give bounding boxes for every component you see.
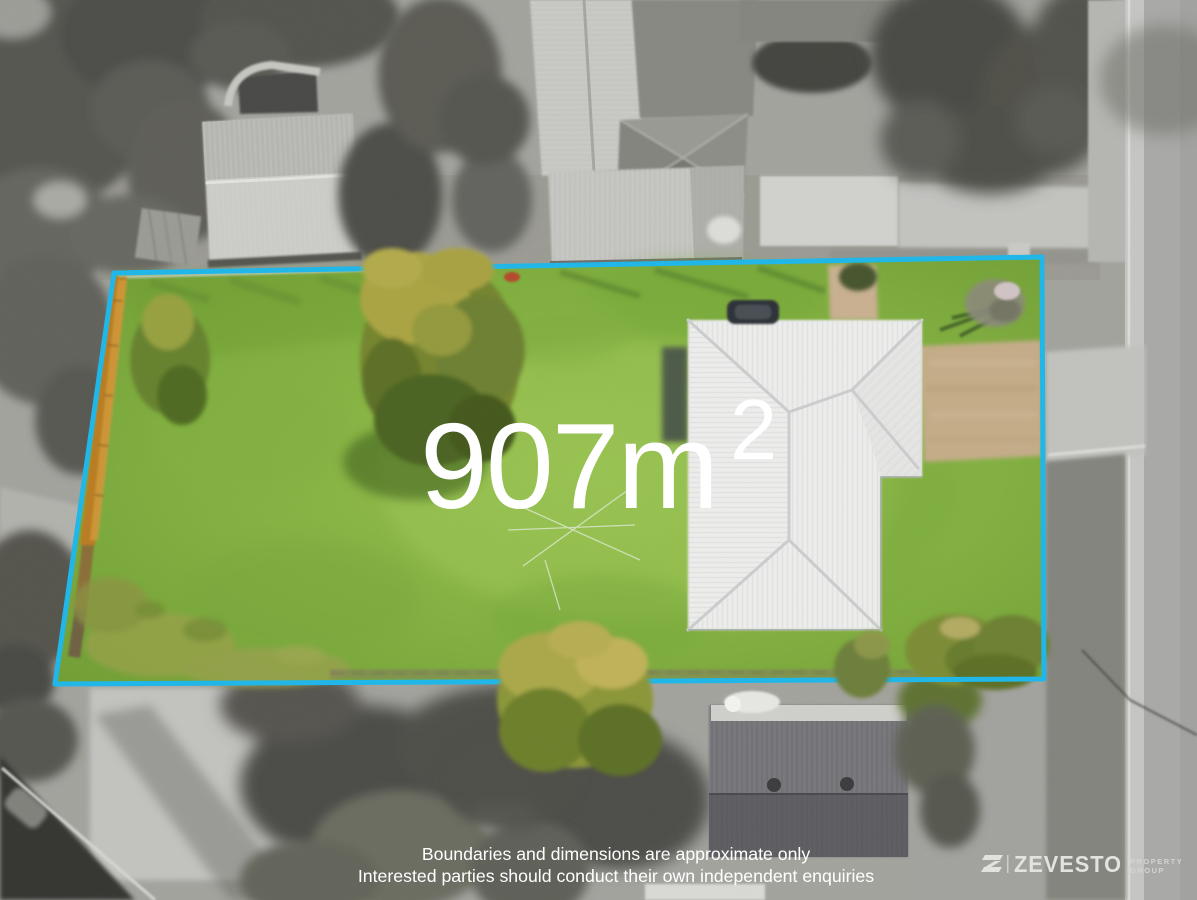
svg-text:907m: 907m bbox=[420, 398, 717, 534]
svg-text:Interested parties should cond: Interested parties should conduct their … bbox=[358, 866, 874, 886]
svg-text:GROUP: GROUP bbox=[1130, 866, 1165, 875]
svg-text:Boundaries and dimensions are: Boundaries and dimensions are approximat… bbox=[422, 844, 811, 864]
svg-text:PROPERTY: PROPERTY bbox=[1130, 857, 1183, 866]
svg-text:2: 2 bbox=[730, 383, 777, 478]
svg-text:ZEVESTO: ZEVESTO bbox=[1014, 851, 1122, 877]
